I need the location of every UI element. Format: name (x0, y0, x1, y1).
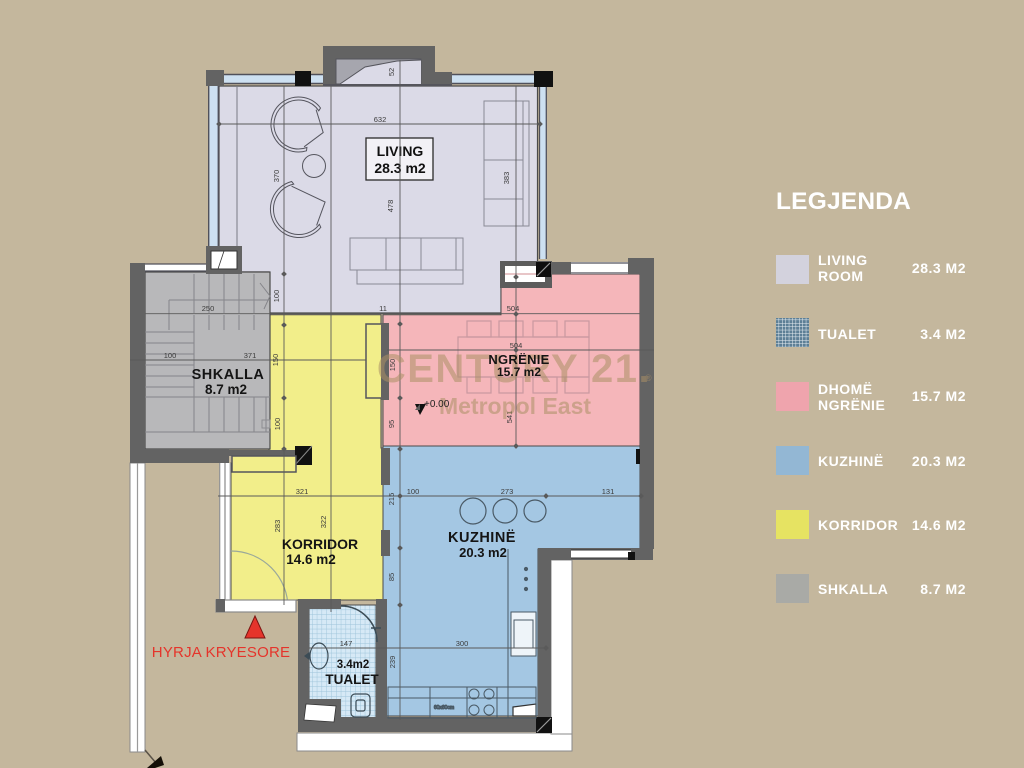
svg-text:15.7 m2: 15.7 m2 (497, 365, 541, 379)
svg-text:ROOM: ROOM (818, 268, 864, 284)
svg-text:®: ® (645, 373, 652, 383)
svg-text:370: 370 (272, 170, 281, 183)
svg-text:95: 95 (387, 420, 396, 428)
svg-text:632: 632 (374, 115, 387, 124)
svg-text:100: 100 (407, 487, 420, 496)
svg-text:SHKALLA: SHKALLA (192, 367, 265, 383)
svg-text:KORRIDOR: KORRIDOR (818, 517, 898, 533)
svg-text:11: 11 (379, 304, 387, 313)
svg-text:150: 150 (271, 354, 280, 367)
svg-text:371: 371 (244, 351, 257, 360)
svg-text:KUZHINË: KUZHINË (818, 453, 884, 469)
svg-text:15.7 M2: 15.7 M2 (912, 388, 966, 404)
svg-text:85: 85 (387, 573, 396, 581)
svg-text:383: 383 (502, 172, 511, 185)
svg-text:283: 283 (273, 520, 282, 533)
svg-text:322: 322 (319, 516, 328, 529)
svg-text:KORRIDOR: KORRIDOR (282, 536, 358, 552)
svg-text:250: 250 (202, 304, 215, 313)
svg-text:HYRJA KRYESORE: HYRJA KRYESORE (152, 644, 290, 661)
svg-text:147: 147 (340, 639, 353, 648)
svg-text:14.6 M2: 14.6 M2 (912, 517, 966, 533)
svg-text:Metropol East: Metropol East (439, 393, 591, 419)
svg-text:LIVING: LIVING (818, 252, 868, 268)
svg-text:NGRËNIE: NGRËNIE (818, 397, 885, 413)
svg-text:131: 131 (602, 487, 615, 496)
svg-text:20.3 m2: 20.3 m2 (459, 545, 507, 560)
svg-text:DHOMË: DHOMË (818, 381, 873, 397)
svg-text:8.7 m2: 8.7 m2 (205, 382, 247, 397)
svg-text:100: 100 (164, 351, 177, 360)
svg-text:504: 504 (507, 304, 520, 313)
svg-text:8.7 M2: 8.7 M2 (920, 581, 966, 597)
svg-text:100: 100 (272, 290, 281, 303)
svg-text:300: 300 (456, 639, 469, 648)
svg-text:273: 273 (501, 487, 514, 496)
svg-text:14.6 m2: 14.6 m2 (286, 552, 336, 567)
svg-text:20.3 M2: 20.3 M2 (912, 453, 966, 469)
svg-text:321: 321 (296, 487, 309, 496)
svg-text:SHKALLA: SHKALLA (818, 581, 888, 597)
svg-text:60x60cm: 60x60cm (434, 705, 454, 711)
svg-text:LEGJENDA: LEGJENDA (776, 188, 911, 215)
svg-text:239: 239 (388, 656, 397, 669)
svg-text:TUALET: TUALET (325, 672, 379, 687)
svg-text:52: 52 (387, 68, 396, 76)
svg-text:+0.00: +0.00 (424, 399, 450, 410)
svg-text:3.4m2: 3.4m2 (337, 659, 370, 671)
svg-text:KUZHINË: KUZHINË (448, 529, 516, 546)
svg-text:100: 100 (273, 418, 282, 431)
svg-text:215: 215 (387, 493, 396, 506)
svg-text:478: 478 (386, 200, 395, 213)
svg-text:3.4 M2: 3.4 M2 (920, 326, 966, 342)
svg-text:28.3 M2: 28.3 M2 (912, 260, 966, 276)
svg-text:TUALET: TUALET (818, 326, 876, 342)
